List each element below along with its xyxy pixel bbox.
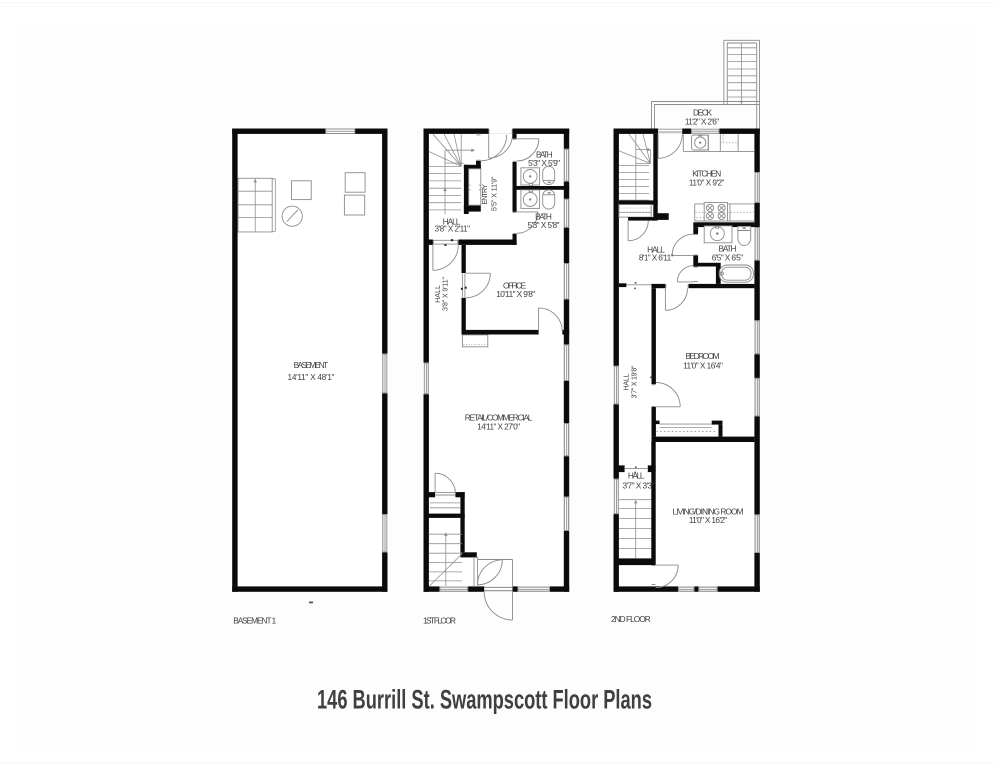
svg-text:2ND FLOOR: 2ND FLOOR: [611, 614, 651, 624]
svg-text:HALL: HALL: [628, 471, 645, 481]
svg-text:3'8" X 2'11": 3'8" X 2'11": [435, 224, 471, 234]
svg-text:11'2" X 2'6": 11'2" X 2'6": [685, 117, 719, 127]
svg-text:10'11" X 9'8": 10'11" X 9'8": [496, 289, 535, 299]
svg-text:BASEMENT 1: BASEMENT 1: [233, 615, 276, 625]
svg-text:146 Burrill St. Swampscott Flo: 146 Burrill St. Swampscott Floor Plans: [317, 685, 652, 715]
svg-text:HALL: HALL: [624, 373, 631, 390]
svg-text:ENTRY: ENTRY: [482, 184, 489, 205]
svg-text:11'0" X 16'2": 11'0" X 16'2": [689, 515, 727, 525]
svg-text:11'0" X 16'4": 11'0" X 16'4": [683, 361, 723, 371]
svg-text:3'8" X 9'11": 3'8" X 9'11": [443, 277, 450, 312]
svg-text:BEDROOM: BEDROOM: [686, 351, 720, 361]
svg-text:3'7" X 3'3": 3'7" X 3'3": [622, 481, 654, 491]
svg-text:6'5" X 6'5": 6'5" X 6'5": [712, 252, 743, 262]
svg-text:BASEMENT: BASEMENT: [294, 360, 329, 370]
svg-text:1ST FLOOR: 1ST FLOOR: [423, 615, 456, 625]
svg-text:14'11" X 27'0": 14'11" X 27'0": [477, 422, 520, 432]
svg-text:14'11" X 48'1": 14'11" X 48'1": [288, 372, 335, 382]
svg-text:5'3" X 5'8": 5'3" X 5'8": [528, 220, 560, 230]
svg-text:11'0" X 9'2": 11'0" X 9'2": [689, 178, 725, 188]
svg-text:5'3" X 5'9": 5'3" X 5'9": [528, 158, 560, 168]
svg-text:3'7" X 19'8": 3'7" X 19'8": [631, 365, 638, 399]
svg-text:8'1" X 6'11": 8'1" X 6'11": [639, 253, 674, 263]
svg-text:HALL: HALL: [435, 285, 442, 303]
svg-text:5'5" X 11'9": 5'5" X 11'9": [492, 176, 499, 211]
